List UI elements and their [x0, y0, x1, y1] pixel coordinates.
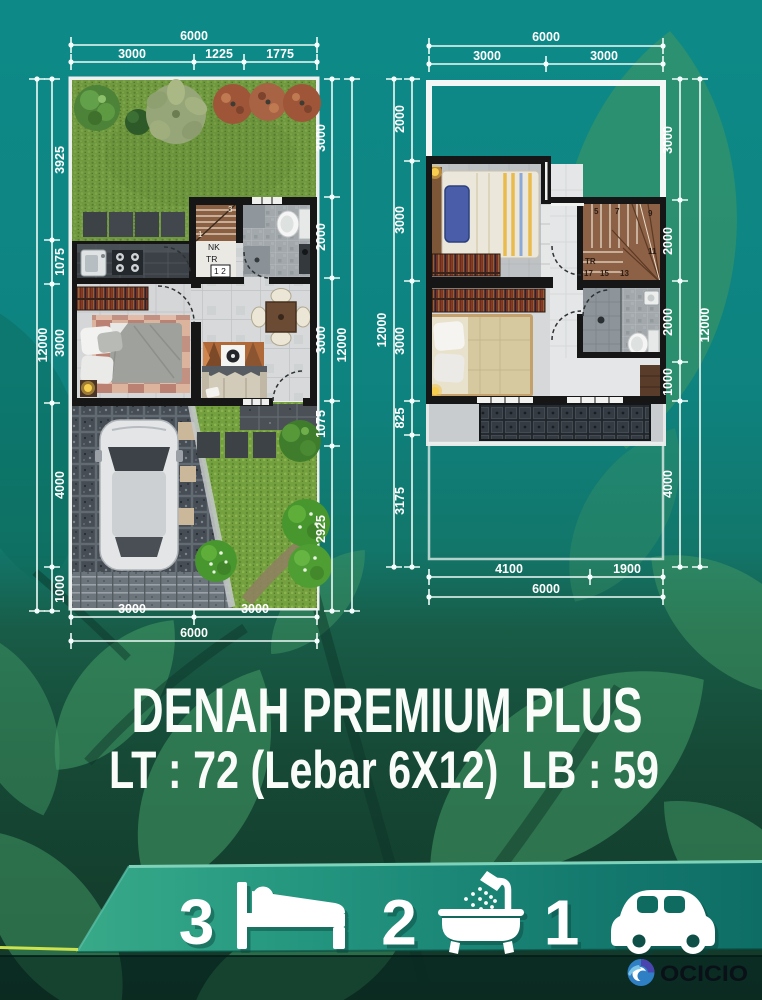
svg-text:3000: 3000: [393, 206, 407, 234]
svg-text:1: 1: [198, 230, 203, 239]
svg-text:12000: 12000: [698, 308, 712, 343]
svg-text:3: 3: [179, 886, 215, 958]
svg-text:3000: 3000: [118, 602, 146, 616]
svg-text:12000: 12000: [375, 313, 389, 348]
svg-text:4000: 4000: [661, 470, 675, 498]
svg-text:825: 825: [393, 408, 407, 429]
svg-text:1000: 1000: [661, 368, 675, 396]
svg-text:1225: 1225: [205, 47, 233, 61]
svg-text:6000: 6000: [532, 582, 560, 596]
svg-text:3000: 3000: [473, 49, 501, 63]
svg-text:3: 3: [228, 205, 233, 214]
svg-text:3000: 3000: [590, 49, 618, 63]
svg-text:2000: 2000: [661, 308, 675, 336]
svg-text:1075: 1075: [314, 410, 328, 438]
svg-text:6000: 6000: [532, 30, 560, 44]
svg-text:7: 7: [615, 207, 620, 216]
svg-text:3925: 3925: [53, 146, 67, 174]
svg-text:2925: 2925: [314, 515, 328, 543]
svg-text:NK: NK: [208, 242, 220, 252]
svg-text:13: 13: [620, 269, 629, 278]
svg-text:4100: 4100: [495, 562, 523, 576]
svg-text:4000: 4000: [53, 471, 67, 499]
svg-text:2000: 2000: [314, 223, 328, 251]
svg-text:1775: 1775: [266, 47, 294, 61]
svg-text:OCICIO: OCICIO: [660, 961, 748, 986]
svg-text:3000: 3000: [393, 327, 407, 355]
svg-text:11: 11: [648, 247, 657, 256]
svg-text:5: 5: [594, 207, 599, 216]
svg-text:LT : 72 (Lebar 6X12) LB : 59: LT : 72 (Lebar 6X12) LB : 59: [109, 741, 659, 800]
svg-text:15: 15: [600, 269, 609, 278]
svg-text:3000: 3000: [53, 329, 67, 357]
svg-text:1900: 1900: [613, 562, 641, 576]
svg-text:TR: TR: [585, 257, 596, 266]
svg-text:12000: 12000: [36, 328, 50, 363]
svg-text:9: 9: [648, 209, 653, 218]
svg-text:DENAH PREMIUM PLUS: DENAH PREMIUM PLUS: [132, 676, 643, 746]
svg-text:17: 17: [584, 269, 593, 278]
svg-text:6000: 6000: [180, 29, 208, 43]
svg-text:3000: 3000: [661, 126, 675, 154]
svg-text:1: 1: [544, 887, 580, 959]
svg-text:3000: 3000: [241, 602, 269, 616]
svg-text:3000: 3000: [118, 47, 146, 61]
svg-text:3175: 3175: [393, 487, 407, 515]
svg-text:1000: 1000: [53, 575, 67, 603]
svg-text:1 2: 1 2: [214, 266, 226, 276]
svg-text:3000: 3000: [314, 124, 328, 152]
svg-text:2000: 2000: [393, 105, 407, 133]
svg-text:12000: 12000: [335, 328, 349, 363]
svg-text:1075: 1075: [53, 248, 67, 276]
svg-text:2000: 2000: [661, 227, 675, 255]
svg-text:TR: TR: [206, 254, 217, 264]
svg-text:6000: 6000: [180, 626, 208, 640]
svg-text:2: 2: [381, 887, 417, 959]
svg-text:3000: 3000: [314, 326, 328, 354]
